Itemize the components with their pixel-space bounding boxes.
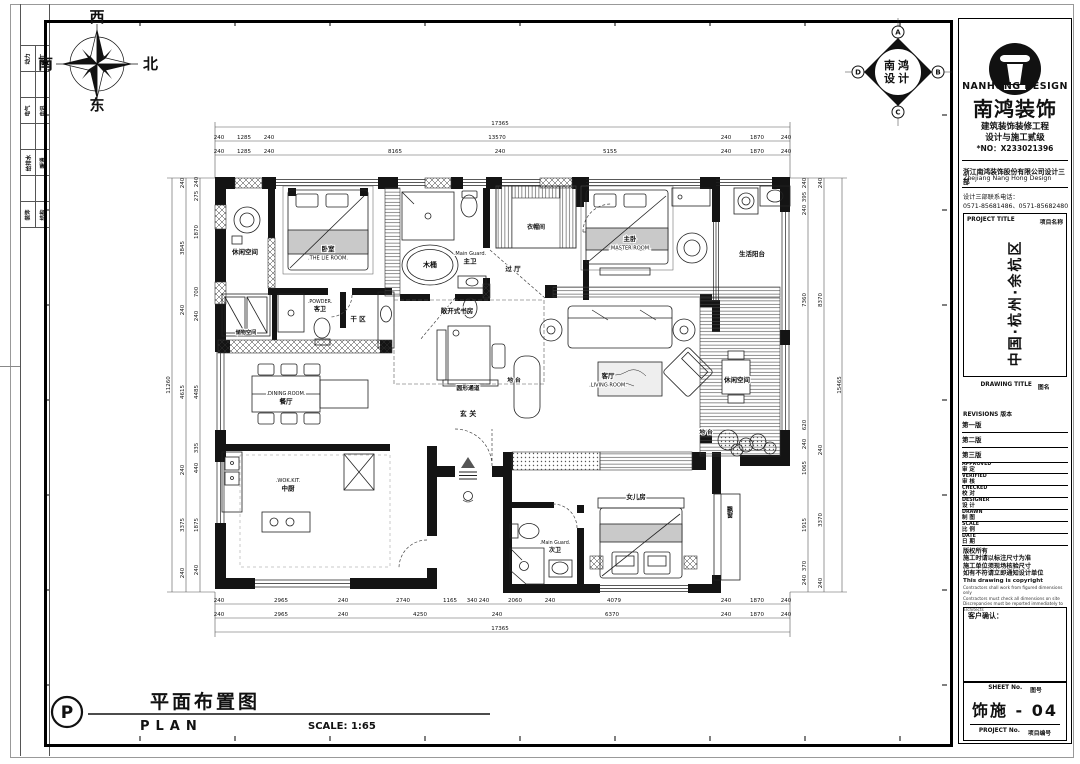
revision-row: 第三版 [962, 448, 1068, 463]
compass-west: 西 [89, 8, 104, 26]
project-title-label-cn: 项目名称 [1040, 217, 1063, 226]
dimension-value: 240 [802, 438, 808, 449]
revision-row: 第二版 [962, 433, 1068, 448]
dimension-value: 240 [264, 135, 275, 141]
stamp-letter-a: A [895, 29, 901, 37]
project-title-box: PROJECT TITLE 项目名称 中国·杭州·余杭区 [963, 213, 1067, 377]
compass-south: 南 [38, 55, 53, 73]
company-name-en: Zhejiang Nang Hong Design [959, 175, 1071, 182]
dimension-value: 240 [721, 612, 732, 618]
client-confirm-label: 客户确认： [964, 608, 1066, 621]
phone-numbers: 0571-85681486、0571-85682480 [959, 201, 1071, 210]
dimension-value: 240 [214, 149, 225, 155]
dimension-value: 5155 [603, 149, 617, 155]
room-label: 地 台 [699, 428, 713, 436]
drawing-title-label-cn: 图名 [1038, 382, 1050, 391]
frame-ticks [44, 21, 947, 741]
dimension-value: 240 [492, 612, 503, 618]
dimension-value: 240 [194, 176, 200, 187]
dimension-value: 240 [818, 444, 824, 455]
dimension-value: 240 [180, 304, 186, 315]
drawing-title-head: DRAWING TITLE 图名 [959, 382, 1071, 391]
room-label: 次卫 [549, 546, 561, 554]
dimension-value: 240 [338, 598, 349, 604]
dimension-value: 240 [781, 149, 792, 155]
dimension-value: 240 [802, 177, 808, 188]
logo-text-en: NANHONG DESIGN [959, 81, 1071, 92]
dimension-value: 3845 [180, 241, 186, 255]
compass-rose [56, 24, 138, 104]
dimension-value: 240 [721, 149, 732, 155]
copyright-note: 版权所有 施工时请以标注尺寸为准 施工单位须现场核验尺寸 如有不符请立即通知设计… [963, 548, 1068, 613]
room-labels: 休闲空间卧室.THE LIE ROOM.木桶.Main Guard.主卫衣帽间过… [231, 223, 766, 554]
dimension-value: 620 [802, 419, 808, 430]
dimension-value: 1870 [194, 225, 200, 239]
project-no-label: PROJECT No. [979, 728, 1020, 737]
room-label: 过 厅 [505, 264, 521, 273]
dimension-value: 395 [802, 191, 808, 202]
room-label: .MASTER ROOM. [609, 245, 651, 251]
footer-title-cn: 平面布置图 [150, 690, 260, 713]
dimension-value: 240 [194, 564, 200, 575]
dimension-value: 8370 [818, 293, 824, 307]
stamp-letter-d: D [855, 69, 861, 77]
field-row: DATE日 期 [962, 534, 1068, 546]
dimension-value: 4079 [607, 598, 621, 604]
dimension-value: 240 [180, 177, 186, 188]
room-label: 木桶 [422, 260, 437, 269]
dimension-value: 11260 [166, 376, 172, 394]
stamp-letter-b: B [935, 69, 940, 77]
logo-text-cn: 南鸿装饰 [959, 93, 1071, 122]
dimension-value: 6370 [605, 612, 619, 618]
dimension-value: 340 [467, 598, 478, 604]
room-label: 玄 关 [460, 409, 476, 418]
dimension-value: 240 [180, 567, 186, 578]
dimension-value: 2060 [508, 598, 522, 604]
revision-row: 第一版 [962, 418, 1068, 433]
dimension-value: 1915 [802, 518, 808, 532]
dimension-value: 240 [214, 135, 225, 141]
field-row: CHECKED校 对 [962, 486, 1068, 498]
room-label: 主卫 [464, 256, 478, 265]
room-label: 休闲空间 [231, 247, 259, 256]
dimension-value: 240 [194, 310, 200, 321]
floor-plan: 西 北 南 东 南鸿 设计 A B C D [0, 0, 1080, 764]
dimension-value: 240 [338, 612, 349, 618]
dimension-value: 17365 [491, 626, 509, 632]
dimension-value: 700 [194, 286, 200, 297]
drawing-sheet: 动力竣工 电气电讯 给排水暖通 装饰结构 [0, 0, 1080, 764]
stamp-letter-c: C [895, 109, 900, 117]
dimension-value: 240 [818, 577, 824, 588]
dimension-value: 370 [802, 560, 808, 571]
room-label: .THE LIE ROOM. [308, 255, 348, 261]
plan-symbol: P [61, 703, 73, 723]
dimension-value: 4250 [413, 612, 427, 618]
drawing-title-label: DRAWING TITLE [980, 382, 1031, 391]
dimension-value: 7360 [802, 293, 808, 307]
dimension-value: 240 [180, 464, 186, 475]
room-label: .LIVING ROOM. [589, 382, 627, 388]
room-label: 休闲空间 [723, 375, 751, 384]
cert-line-2: 设计与施工贰级 [959, 131, 1071, 143]
dimension-value: 240 [802, 204, 808, 215]
footer-scale: SCALE: 1:65 [308, 721, 376, 732]
sheet-number: 饰施 - 04 [964, 694, 1066, 721]
dimension-value: 240 [214, 598, 225, 604]
dimension-value: 240 [721, 135, 732, 141]
dimension-value: 240 [264, 149, 275, 155]
cert-no: *NO：X233021396 [959, 143, 1071, 154]
room-label: .DINING ROOM. [266, 391, 305, 397]
dimension-value: 240 [781, 135, 792, 141]
phone-label: 设计三部联系电话： [959, 192, 1071, 201]
room-label: 地 台 [507, 376, 521, 384]
dimension-value: 1285 [237, 135, 251, 141]
room-label: 衣帽间 [527, 223, 545, 231]
dimension-value: 1165 [443, 598, 457, 604]
sheet-no-label: SHEET No. [988, 685, 1022, 694]
design-stamp: 南鸿 设计 A B C D [845, 18, 952, 126]
room-label: 中厨 [282, 483, 296, 492]
dimension-value: 1875 [194, 518, 200, 532]
dimension-value: 8165 [388, 149, 402, 155]
dimension-value: 4615 [180, 385, 186, 399]
dimension-value: 1870 [750, 135, 764, 141]
dimension-value: 1870 [750, 598, 764, 604]
room-label: 主卧 [624, 234, 638, 243]
project-title-label: PROJECT TITLE [967, 217, 1015, 226]
dimension-value: 240 [781, 612, 792, 618]
room-label: 生活阳台 [739, 249, 766, 258]
field-row: DRAWN制 图 [962, 510, 1068, 522]
dimension-value: 13570 [488, 135, 506, 141]
field-row: APPROVED审 定 [962, 462, 1068, 474]
field-row: VERIFIED审 核 [962, 474, 1068, 486]
dimension-value: 240 [802, 574, 808, 585]
dimension-value: 240 [721, 598, 732, 604]
divider [962, 187, 1068, 188]
field-row: SCALE比 例 [962, 522, 1068, 534]
dimension-value: 240 [495, 149, 506, 155]
signoff-fields: APPROVED审 定 VERIFIED审 核 CHECKED校 对 DESIG… [962, 462, 1068, 546]
room-label: 女儿房 [626, 492, 646, 501]
client-confirm-box: 客户确认： [963, 607, 1067, 683]
dimension-value: 2740 [396, 598, 410, 604]
room-label: 卧室 [322, 244, 336, 253]
compass-north: 北 [143, 55, 158, 73]
dimension-value: 240 [214, 612, 225, 618]
stamp-text-bottom: 设计 [884, 71, 912, 85]
project-title: 中国·杭州·余杭区 [1005, 240, 1025, 367]
dimension-value: 440 [194, 462, 200, 473]
dimension-value: 240 [781, 598, 792, 604]
dimension-value: 2965 [274, 598, 288, 604]
room-label: 储物空间 [236, 328, 257, 336]
dimension-value: 2965 [274, 612, 288, 618]
dimension-value: 3370 [818, 513, 824, 527]
project-no-label-cn: 项目编号 [1028, 728, 1051, 737]
title-block: NANHONG DESIGN 南鸿装饰 建筑装饰装修工程 设计与施工贰级 *NO… [958, 18, 1072, 744]
room-label: 圆形通道 [456, 384, 479, 392]
dimension-value: 240 [545, 598, 556, 604]
sheet-no-label-cn: 图号 [1030, 685, 1042, 694]
room-label: 飘窗 [726, 505, 734, 519]
room-label: 餐厅 [279, 396, 294, 405]
room-label: .POWDER. [308, 299, 332, 305]
dimension-value: 15465 [837, 376, 843, 394]
revisions-head: REVISIONS 版本 [959, 409, 1071, 418]
room-label: 敞开式书房 [441, 306, 474, 315]
field-row: DESIGNER设 计 [962, 498, 1068, 510]
divider [962, 160, 1068, 161]
dimension-value: 240 [479, 598, 490, 604]
footer-title-en: PLAN [140, 719, 203, 734]
dimension-value: 240 [818, 177, 824, 188]
stamp-text-top: 南鸿 [884, 58, 912, 72]
dimension-value: 17365 [491, 121, 509, 127]
dimension-value: 1065 [802, 461, 808, 475]
dimension-value: 1870 [750, 612, 764, 618]
dimension-value: 1870 [750, 149, 764, 155]
dimension-value: 275 [194, 190, 200, 201]
dimension-value: 3375 [180, 518, 186, 532]
compass-east: 东 [89, 96, 104, 114]
room-label: .Main Guard. [454, 251, 487, 257]
room-label: .WOK.KIT. [276, 478, 301, 484]
dimension-value: 1285 [237, 149, 251, 155]
room-label: 干 区 [350, 315, 366, 323]
room-label: 客卫 [313, 305, 326, 313]
room-label: .Main Guard. [540, 540, 571, 546]
footer-title: P 平面布置图 PLAN SCALE: 1:65 [52, 690, 490, 734]
dimension-value: 4485 [194, 385, 200, 399]
dimension-value: 335 [194, 442, 200, 453]
room-label: 客厅 [601, 371, 616, 380]
cabinet-bands [385, 186, 780, 470]
sheet-no-box: SHEET No. 图号 饰施 - 04 PROJECT No. 项目编号 [963, 681, 1067, 741]
